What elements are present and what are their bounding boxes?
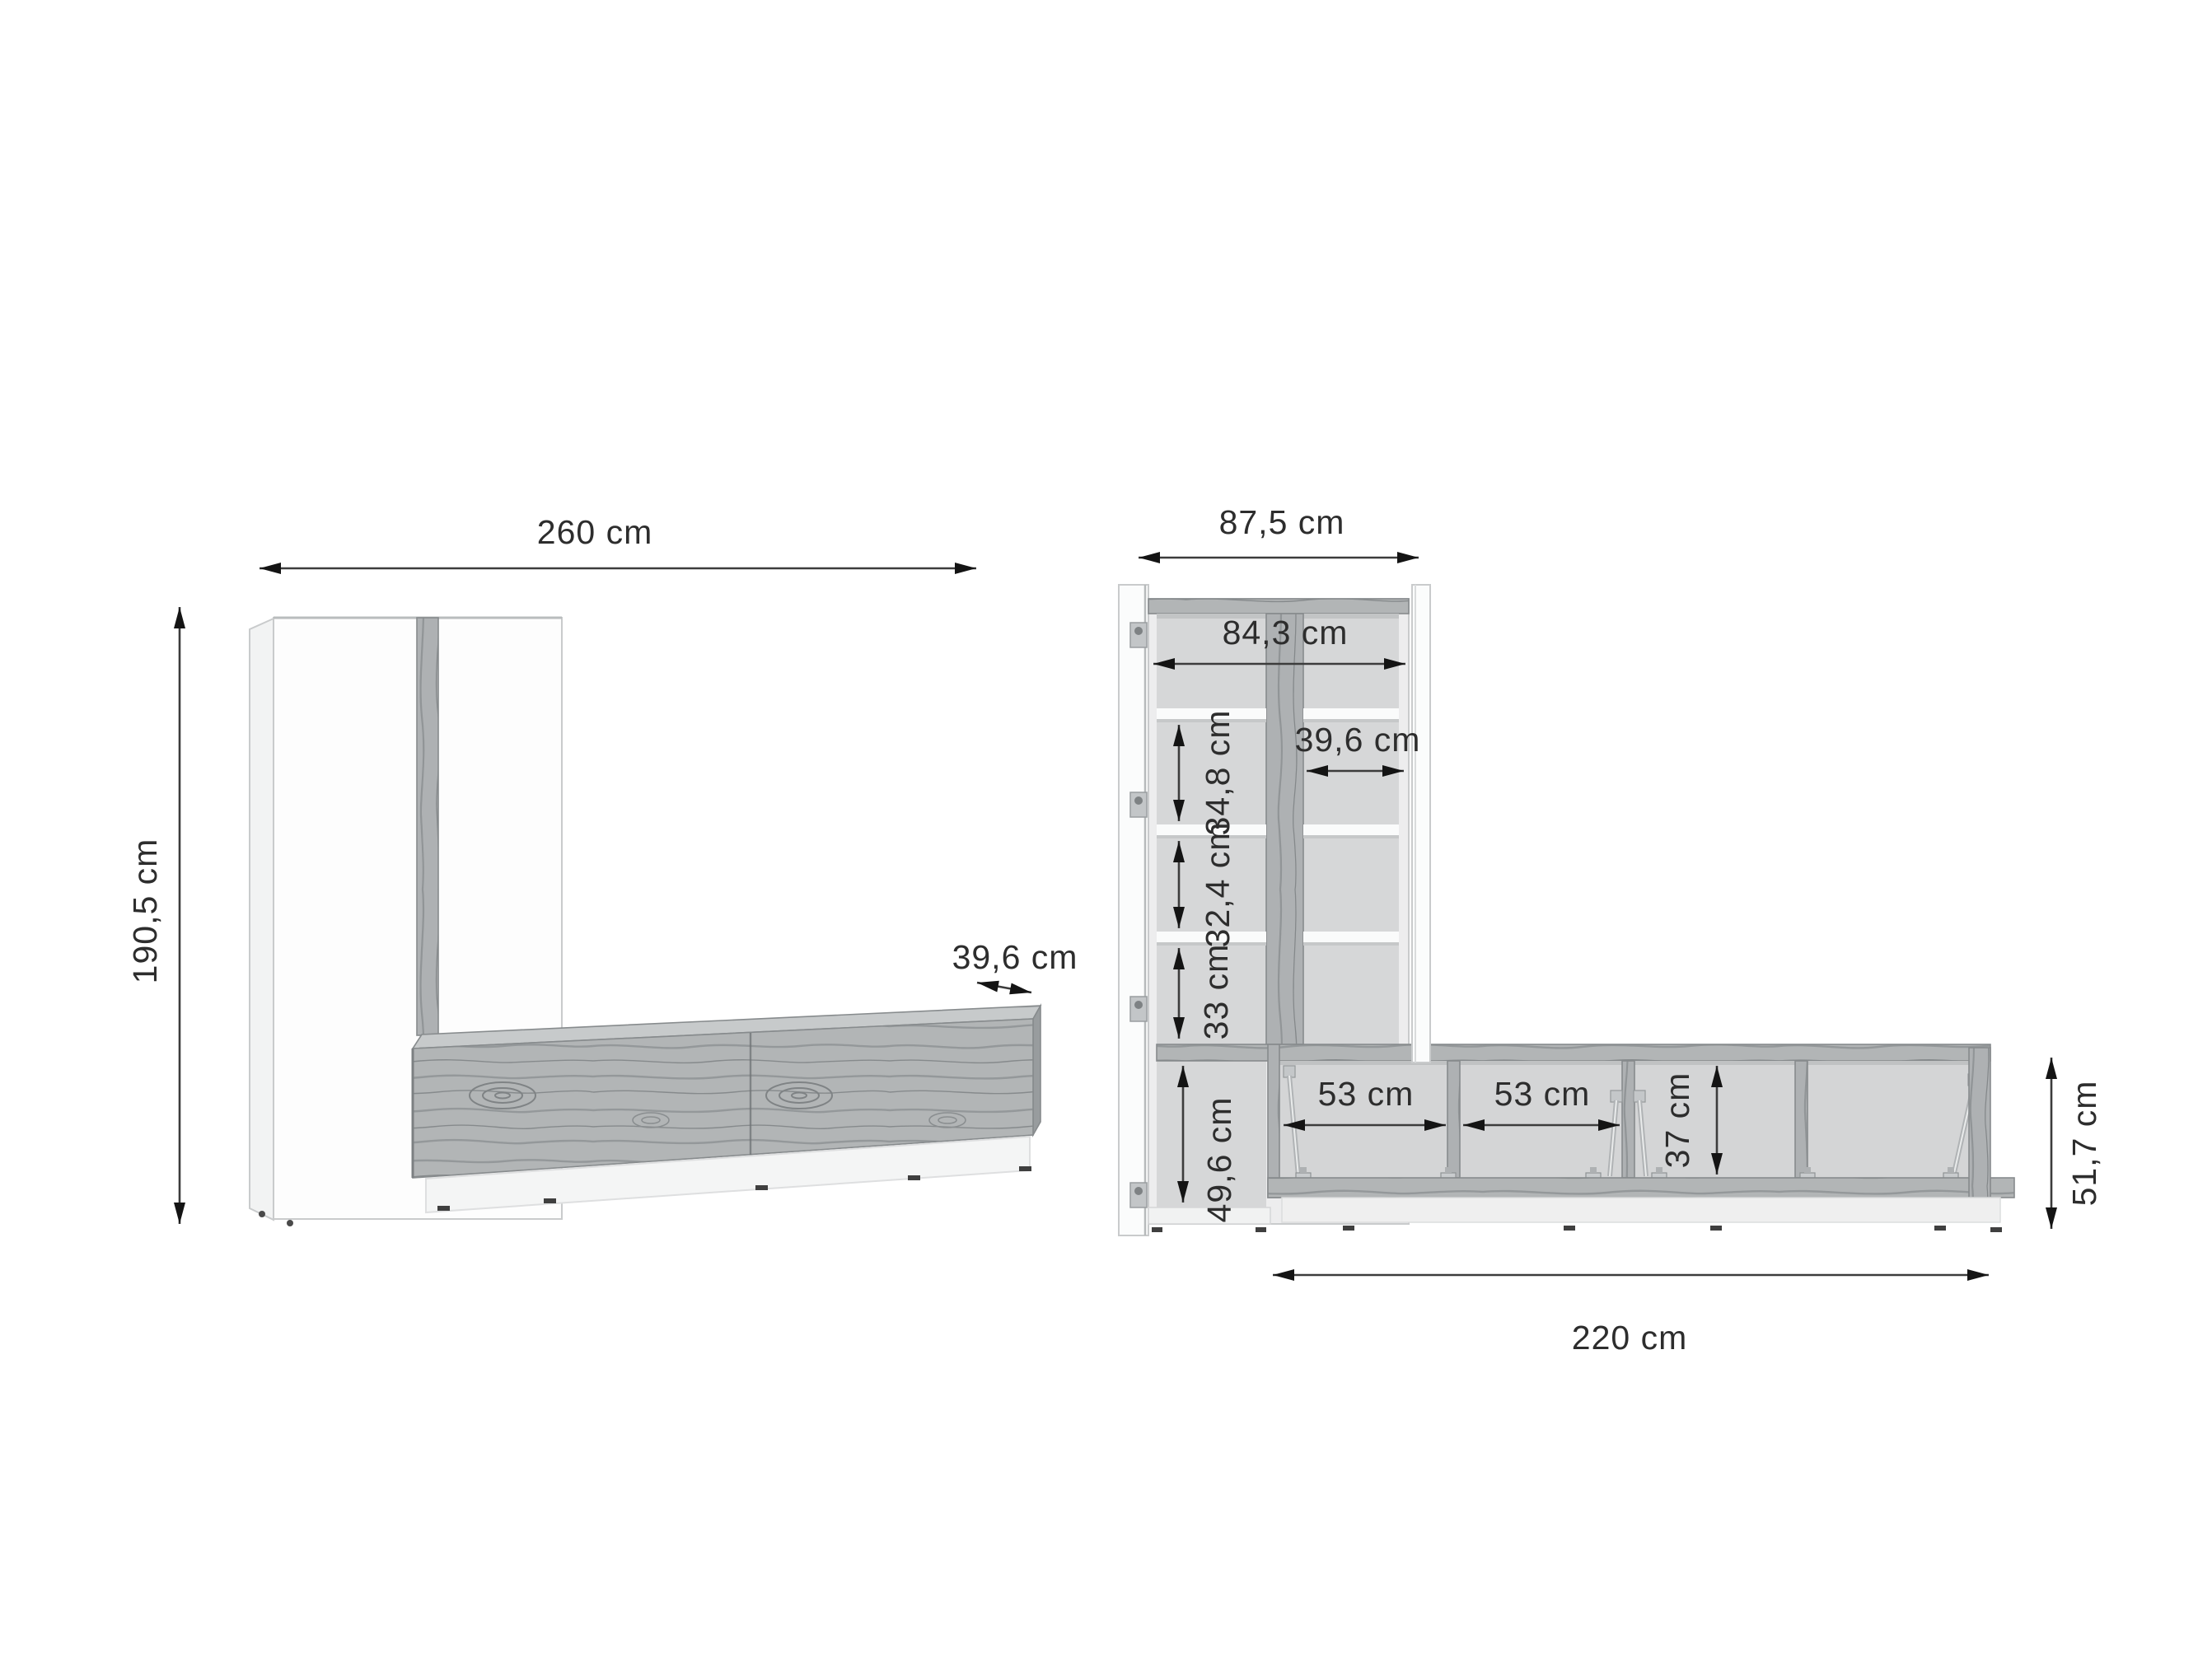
- dim-label-middle-compartment: 32,4 cm: [1199, 822, 1237, 948]
- cabinet-foot: [259, 1211, 265, 1217]
- cabinet-feet: [1152, 1227, 1266, 1232]
- lowboard-open-flap: [1268, 1178, 2014, 1198]
- dim-label-right-column-width: 39,6 cm: [1295, 721, 1421, 759]
- right-view: 87,5 cm 84,3 cm 39,6 cm 34,8 cm 32,4 cm …: [1119, 503, 2103, 1357]
- lowboard-feet: [1343, 1226, 2002, 1232]
- cabinet-top-panel: [1148, 599, 1409, 614]
- lowboard-side-face: [1033, 1006, 1041, 1135]
- dim-label-lowboard-comp1: 53 cm: [1318, 1075, 1415, 1113]
- cabinet-wood-strip: [417, 618, 438, 1035]
- dim-label-lowboard-inner-height: 37 cm: [1658, 1072, 1696, 1169]
- dim-label-cabinet-outer-width: 87,5 cm: [1219, 503, 1345, 541]
- lowboard-right-side-panel: [1969, 1048, 1990, 1198]
- dim-label-lowboard-depth: 39,6 cm: [952, 938, 1078, 976]
- cabinet-left-door-open: [1119, 585, 1148, 1235]
- lowboard-plinth: [1282, 1198, 2000, 1222]
- cabinet-foot: [287, 1220, 293, 1226]
- tv-lowboard-open: [1157, 1044, 2014, 1232]
- dim-label-lowboard-comp2: 53 cm: [1494, 1075, 1591, 1113]
- cabinet-side-panel: [250, 619, 274, 1220]
- dim-label-upper-compartment: 34,8 cm: [1199, 710, 1237, 836]
- lowboard-top-panel: [1157, 1044, 1990, 1061]
- dim-label-lower-compartment: 33 cm: [1197, 944, 1235, 1040]
- dim-label-lowboard-total-width: 220 cm: [1572, 1319, 1687, 1357]
- tv-lowboard-closed: [413, 1006, 1041, 1212]
- furniture-dimension-diagram: 260 cm 190,5 cm 39,6 cm: [0, 0, 2212, 1658]
- dim-label-total-height: 190,5 cm: [126, 838, 164, 984]
- dim-label-total-width: 260 cm: [537, 513, 652, 551]
- dim-label-lowboard-outer-height: 51,7 cm: [2065, 1081, 2103, 1207]
- dim-arrow-lowboard-depth: [977, 983, 1031, 992]
- lowboard-left-side-panel: [1268, 1044, 1279, 1198]
- left-view: 260 cm 190,5 cm 39,6 cm: [126, 513, 1078, 1226]
- dim-label-cabinet-inner-width: 84,3 cm: [1223, 614, 1349, 652]
- dim-label-base-compartment: 49,6 cm: [1200, 1097, 1238, 1223]
- cabinet-center-column: [1266, 614, 1303, 1044]
